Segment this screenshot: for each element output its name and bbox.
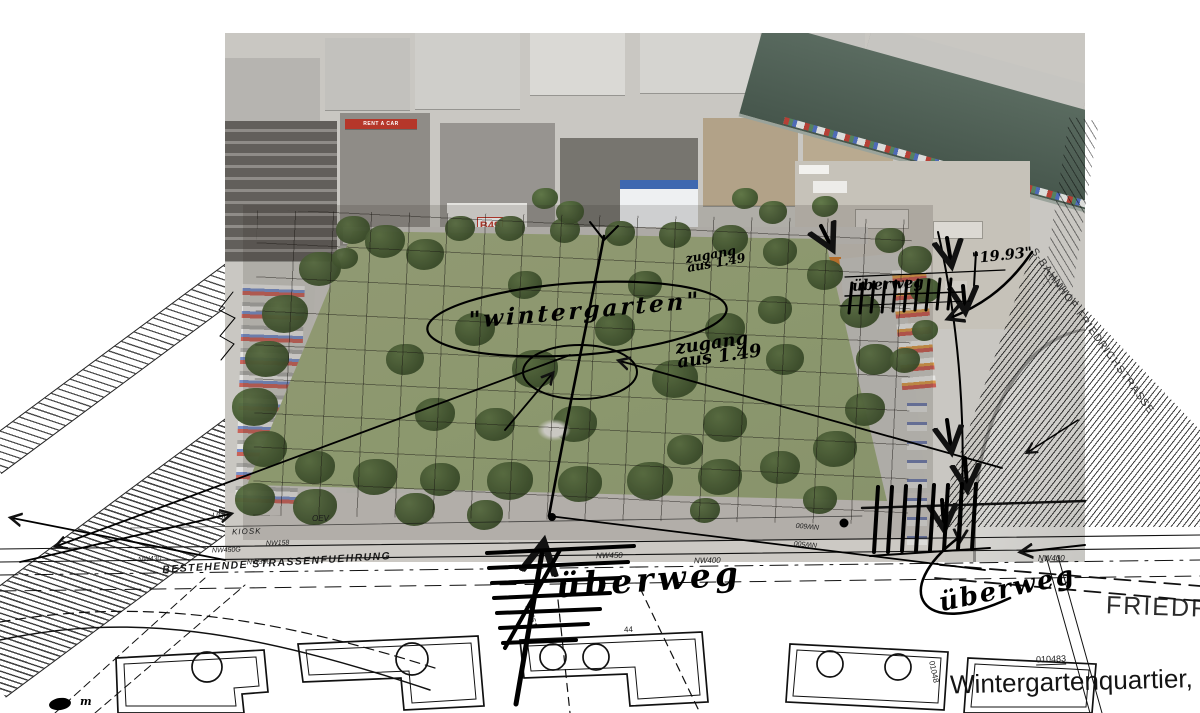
label-uhr: UHR (212, 511, 230, 521)
street-name-friedrichstrasse: FRIEDRICH (1106, 591, 1200, 625)
quarter-title: Wintergartenquartier, F (950, 663, 1200, 701)
note-meter: m (80, 695, 92, 708)
label-10051: 10051 (523, 604, 538, 628)
note-ueberweg-top: überweg (852, 273, 925, 295)
note-ueberweg-right: überweg (936, 560, 1078, 618)
label-nw450g: NW450G (212, 546, 241, 554)
label-kiosk: KIOSK (232, 526, 262, 536)
label-nw450: NW450 (596, 551, 623, 560)
collage-canvas: RENT A CAR B49 (0, 0, 1200, 713)
label-nw158: NW158 (266, 540, 290, 548)
label-nw430: NW430 (138, 555, 162, 563)
label-01048: 01048 (927, 660, 940, 684)
plan-grid-overlay (253, 210, 912, 524)
label-oev: OEV (312, 514, 329, 523)
label-010483: 010483 (1036, 653, 1066, 665)
label-44: 44 (624, 625, 633, 634)
